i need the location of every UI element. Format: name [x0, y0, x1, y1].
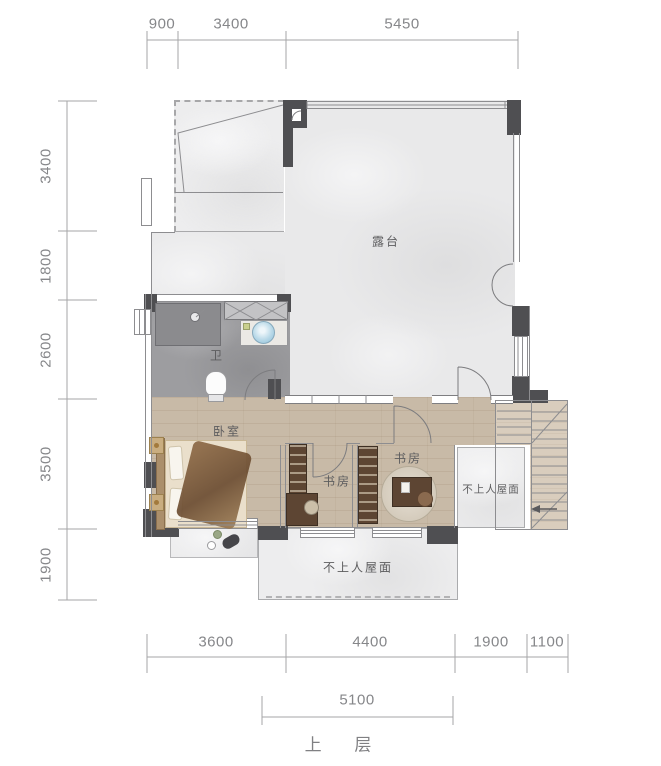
desk-paper: [401, 482, 410, 493]
window-study2-bottom: [372, 527, 422, 538]
bath-cabinet: [224, 301, 288, 320]
toilet-base: [208, 394, 224, 402]
dim-top-3: 5450: [384, 16, 419, 33]
wall-bottom-east: [427, 526, 458, 544]
stair-run-floor: [530, 400, 567, 530]
terrace-label: 露台: [372, 233, 400, 250]
sink-basin: [252, 321, 275, 344]
hall-wall-band-a: [432, 395, 458, 404]
window-roof-left: [141, 178, 152, 226]
dim-left-3: 2600: [38, 332, 55, 367]
toilet-bowl: [205, 371, 227, 396]
wall-bottom-mid: [258, 526, 288, 540]
soap-dish: [243, 323, 250, 330]
column-notch: [290, 107, 303, 123]
dim-left-5: 1900: [38, 547, 55, 582]
shower-area: [155, 303, 221, 346]
roof-bottom-label: 不上人屋面: [323, 559, 393, 576]
bookshelf-study-right: [358, 446, 378, 524]
dim-bottom2-1: 5100: [339, 692, 374, 709]
bathroom-label: 卫: [210, 347, 224, 364]
hall-window-band: [285, 395, 393, 404]
nightstand-bottom-knob: [154, 500, 159, 505]
dim-top-2: 3400: [213, 16, 248, 33]
column-terrace-right: [507, 100, 521, 135]
plan-title: 上 层: [291, 731, 386, 756]
plant-icon: [213, 530, 222, 539]
dim-left-1: 3400: [38, 148, 55, 183]
wall-bath-se: [268, 379, 281, 399]
dim-bottom-4: 1100: [530, 634, 564, 651]
window-bath-left: [134, 309, 151, 335]
terrace-floor-right: [285, 100, 515, 400]
study-right-label: 书房: [394, 450, 422, 467]
dim-bottom-2: 4400: [352, 634, 387, 651]
dim-left-4: 3500: [38, 446, 55, 481]
chair-study-left: [304, 500, 319, 515]
dim-bottom-3: 1900: [473, 634, 508, 651]
window-right: [514, 336, 528, 377]
roof-slope-panel: [174, 100, 284, 232]
study-left-label: 书房: [323, 473, 351, 490]
dim-top-1: 900: [149, 16, 176, 33]
dim-bottom-1: 3600: [198, 634, 233, 651]
column-terrace-left-stem: [283, 128, 293, 167]
shower-head-icon: [190, 312, 200, 322]
bed-pillow-1: [168, 446, 184, 481]
window-study1-bottom: [300, 527, 355, 538]
floor-plan-canvas: 露台 卫 卧室 书房 书房 不上人屋面 不上人屋面 900 3400 5450 …: [0, 0, 661, 766]
bedroom-label: 卧室: [213, 423, 241, 440]
hall-wall-band-b: [491, 395, 513, 404]
nightstand-top-knob: [154, 443, 159, 448]
roof-bottom-dashed-line: [266, 596, 450, 598]
bookshelf-study-left: [289, 444, 307, 494]
wall-stair-top: [512, 390, 548, 403]
bed: [156, 438, 252, 530]
side-table-icon: [207, 541, 216, 550]
roof-right-label: 不上人屋面: [462, 482, 520, 497]
chair-study-right: [417, 491, 433, 507]
dim-left-2: 1800: [38, 248, 55, 283]
wall-right-upper: [512, 306, 530, 336]
